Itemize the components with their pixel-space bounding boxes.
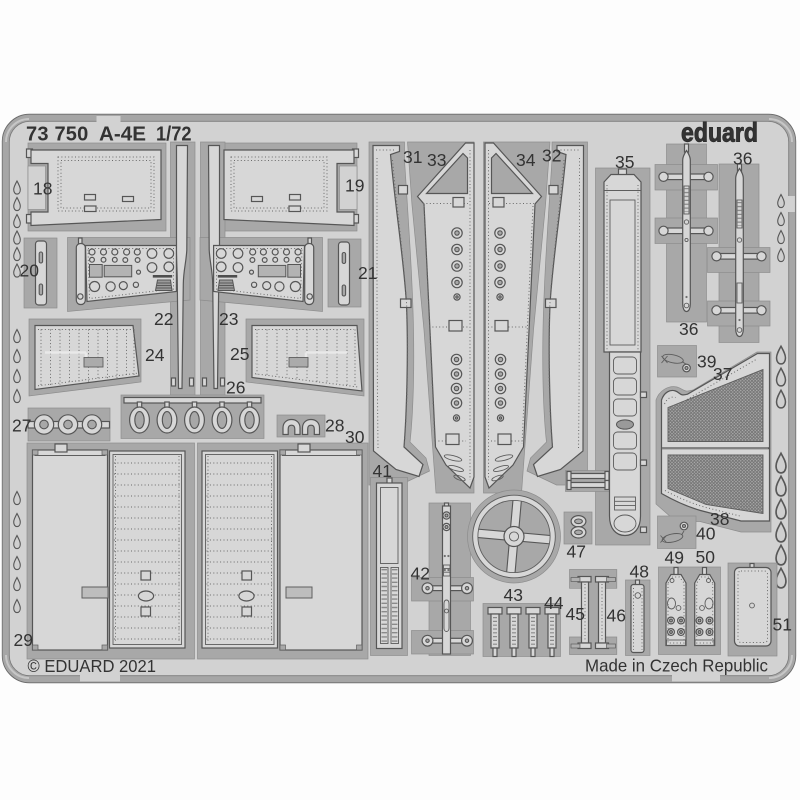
svg-text:eduard: eduard	[681, 118, 758, 148]
svg-text:31: 31	[403, 147, 422, 167]
svg-text:20: 20	[20, 261, 40, 281]
svg-text:50: 50	[696, 547, 716, 567]
svg-text:44: 44	[544, 593, 564, 613]
svg-text:25: 25	[230, 344, 249, 364]
svg-text:A-4E: A-4E	[99, 123, 146, 146]
svg-text:18: 18	[33, 179, 52, 199]
svg-text:36: 36	[679, 319, 698, 339]
svg-text:49: 49	[665, 548, 684, 568]
svg-text:28: 28	[325, 416, 344, 436]
svg-text:46: 46	[607, 606, 626, 626]
svg-text:21: 21	[358, 263, 377, 283]
svg-text:30: 30	[345, 427, 365, 447]
svg-text:27: 27	[12, 416, 31, 436]
svg-text:39: 39	[697, 352, 716, 372]
svg-text:43: 43	[504, 585, 523, 605]
svg-text:33: 33	[427, 150, 446, 170]
svg-text:34: 34	[516, 150, 536, 170]
svg-text:Made in Czech Republic: Made in Czech Republic	[585, 656, 768, 676]
svg-text:24: 24	[145, 345, 165, 365]
svg-text:26: 26	[226, 378, 245, 398]
svg-text:47: 47	[567, 542, 586, 562]
svg-text:73 750: 73 750	[26, 123, 89, 146]
svg-text:29: 29	[14, 630, 33, 650]
svg-text:45: 45	[566, 604, 585, 624]
svg-text:23: 23	[219, 309, 238, 329]
svg-text:22: 22	[154, 309, 173, 329]
svg-text:19: 19	[345, 176, 364, 196]
svg-text:35: 35	[615, 152, 634, 172]
svg-text:32: 32	[542, 146, 561, 166]
svg-text:42: 42	[411, 564, 430, 584]
svg-text:51: 51	[773, 615, 792, 635]
svg-text:41: 41	[373, 461, 392, 481]
svg-text:36: 36	[733, 149, 752, 169]
svg-text:48: 48	[630, 562, 649, 582]
svg-text:40: 40	[696, 524, 716, 544]
